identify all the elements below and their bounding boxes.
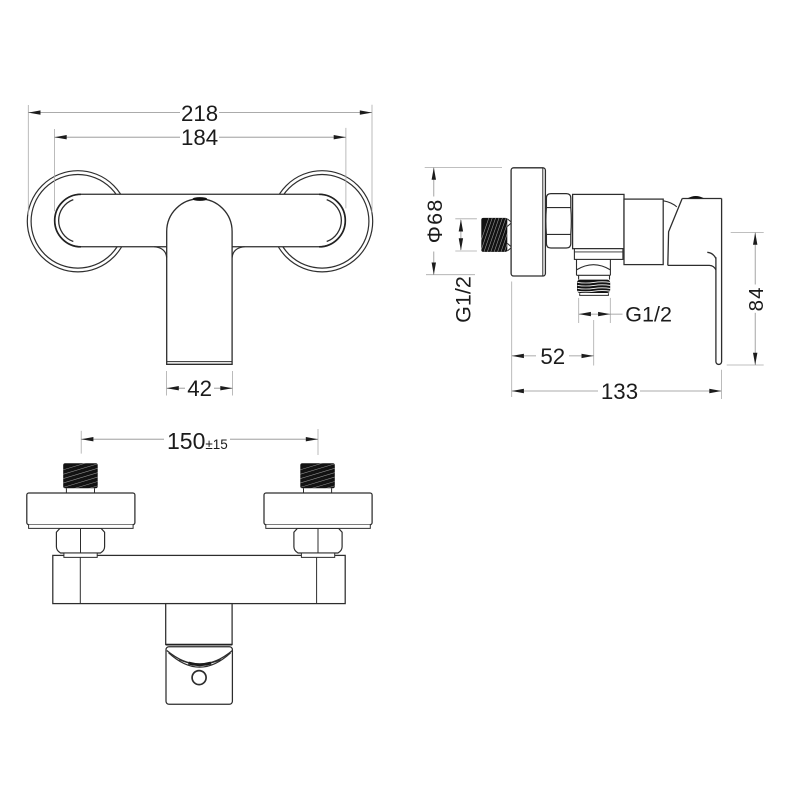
svg-text:42: 42 — [187, 376, 212, 401]
svg-text:Φ68: Φ68 — [423, 198, 447, 243]
svg-text:218: 218 — [181, 101, 218, 126]
svg-text:133: 133 — [601, 379, 638, 404]
svg-text:52: 52 — [540, 344, 565, 369]
svg-text:G1/2: G1/2 — [452, 276, 476, 323]
svg-text:G1/2: G1/2 — [625, 303, 672, 327]
svg-text:84: 84 — [745, 286, 768, 311]
svg-text:184: 184 — [181, 125, 218, 150]
